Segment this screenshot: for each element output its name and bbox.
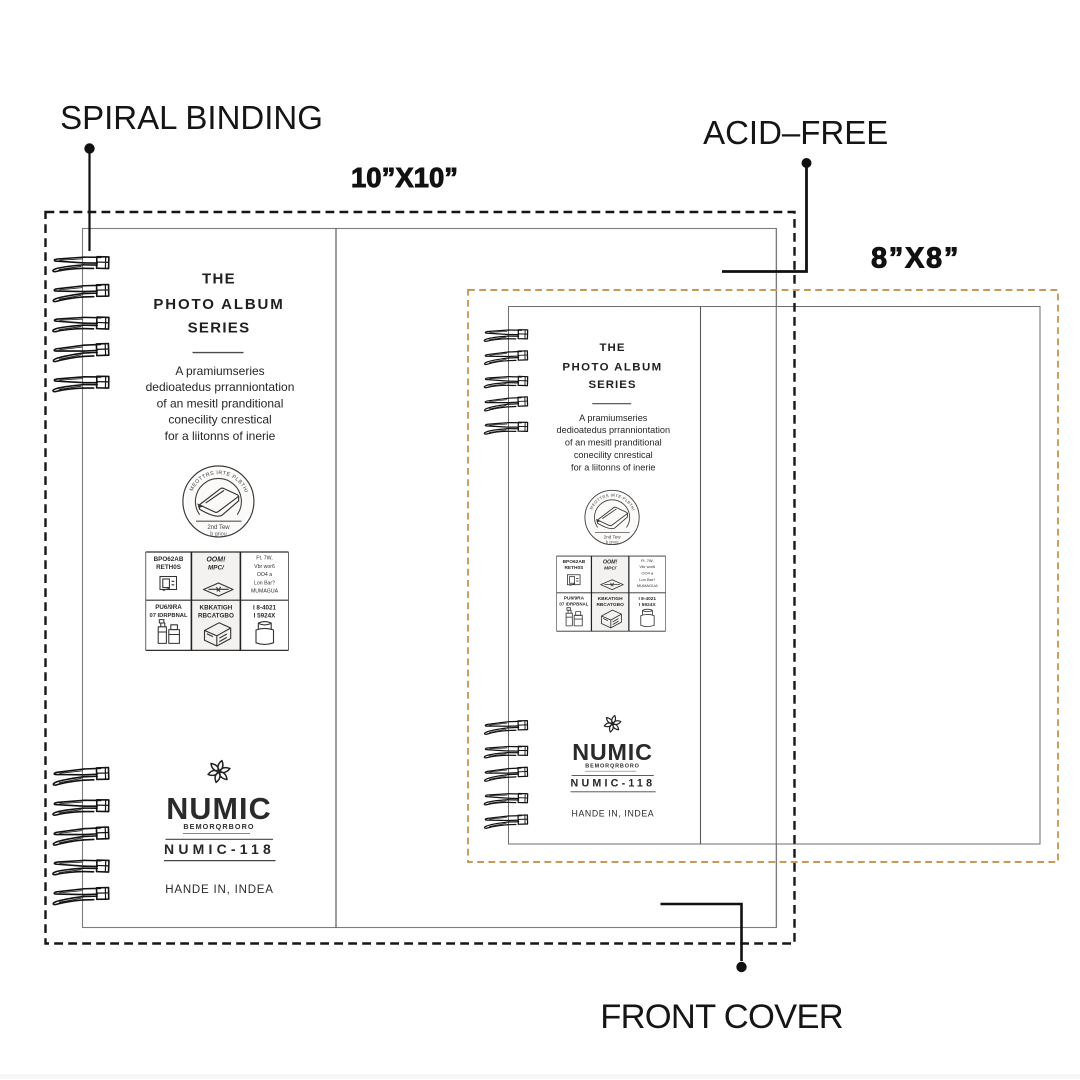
svg-text:conecility cnrestical: conecility cnrestical [168,413,271,427]
svg-text:RETH0S: RETH0S [156,564,181,571]
svg-text:2nd Tew: 2nd Tew [207,525,230,531]
svg-text:of an mesitl pranditional: of an mesitl pranditional [157,396,284,410]
svg-text:HANDE IN, INDEA: HANDE IN, INDEA [165,884,274,896]
svg-text:PU6/9RA: PU6/9RA [155,604,182,611]
svg-text:BEMORQRBORO: BEMORQRBORO [183,822,254,831]
svg-text:ACID–FREE: ACID–FREE [703,114,888,151]
svg-text:Ft. 7W,: Ft. 7W, [256,556,272,562]
svg-text:SPIRAL BINDING: SPIRAL BINDING [60,99,323,136]
svg-text:KBKATIGH: KBKATIGH [200,605,233,612]
svg-text:FRONT COVER: FRONT COVER [600,998,843,1036]
svg-text:NUMIC-118: NUMIC-118 [164,841,275,857]
svg-text:MPC/: MPC/ [208,565,225,572]
svg-text:Lon Bar?: Lon Bar? [254,580,275,586]
svg-text:07 IDRPBNAL: 07 IDRPBNAL [149,613,187,619]
svg-text:dedioatedus prranniontation: dedioatedus prranniontation [146,380,295,394]
svg-text:b gnou: b gnou [210,532,227,538]
svg-text:I 8-4021: I 8-4021 [253,605,277,612]
svg-text:SERIES: SERIES [188,319,251,336]
svg-text:10”X10”: 10”X10” [351,162,458,193]
svg-text:8”X8”: 8”X8” [871,242,960,274]
svg-text:OOM!: OOM! [206,557,226,564]
svg-text:I 5924X: I 5924X [254,613,277,620]
svg-text:THE: THE [202,270,236,287]
svg-text:OO4 a: OO4 a [257,572,272,578]
svg-text:NUMIC: NUMIC [166,792,271,826]
svg-text:A pramiumseries: A pramiumseries [175,364,264,378]
svg-text:PHOTO ALBUM: PHOTO ALBUM [153,296,284,313]
svg-text:RBCATGBO: RBCATGBO [198,613,234,620]
svg-text:Vbr wor6: Vbr wor6 [254,564,275,570]
svg-text:BPO62AB: BPO62AB [154,556,184,563]
svg-text:for a liitonns of inerie: for a liitonns of inerie [165,429,276,443]
svg-text:MUMAGUA: MUMAGUA [251,589,279,595]
